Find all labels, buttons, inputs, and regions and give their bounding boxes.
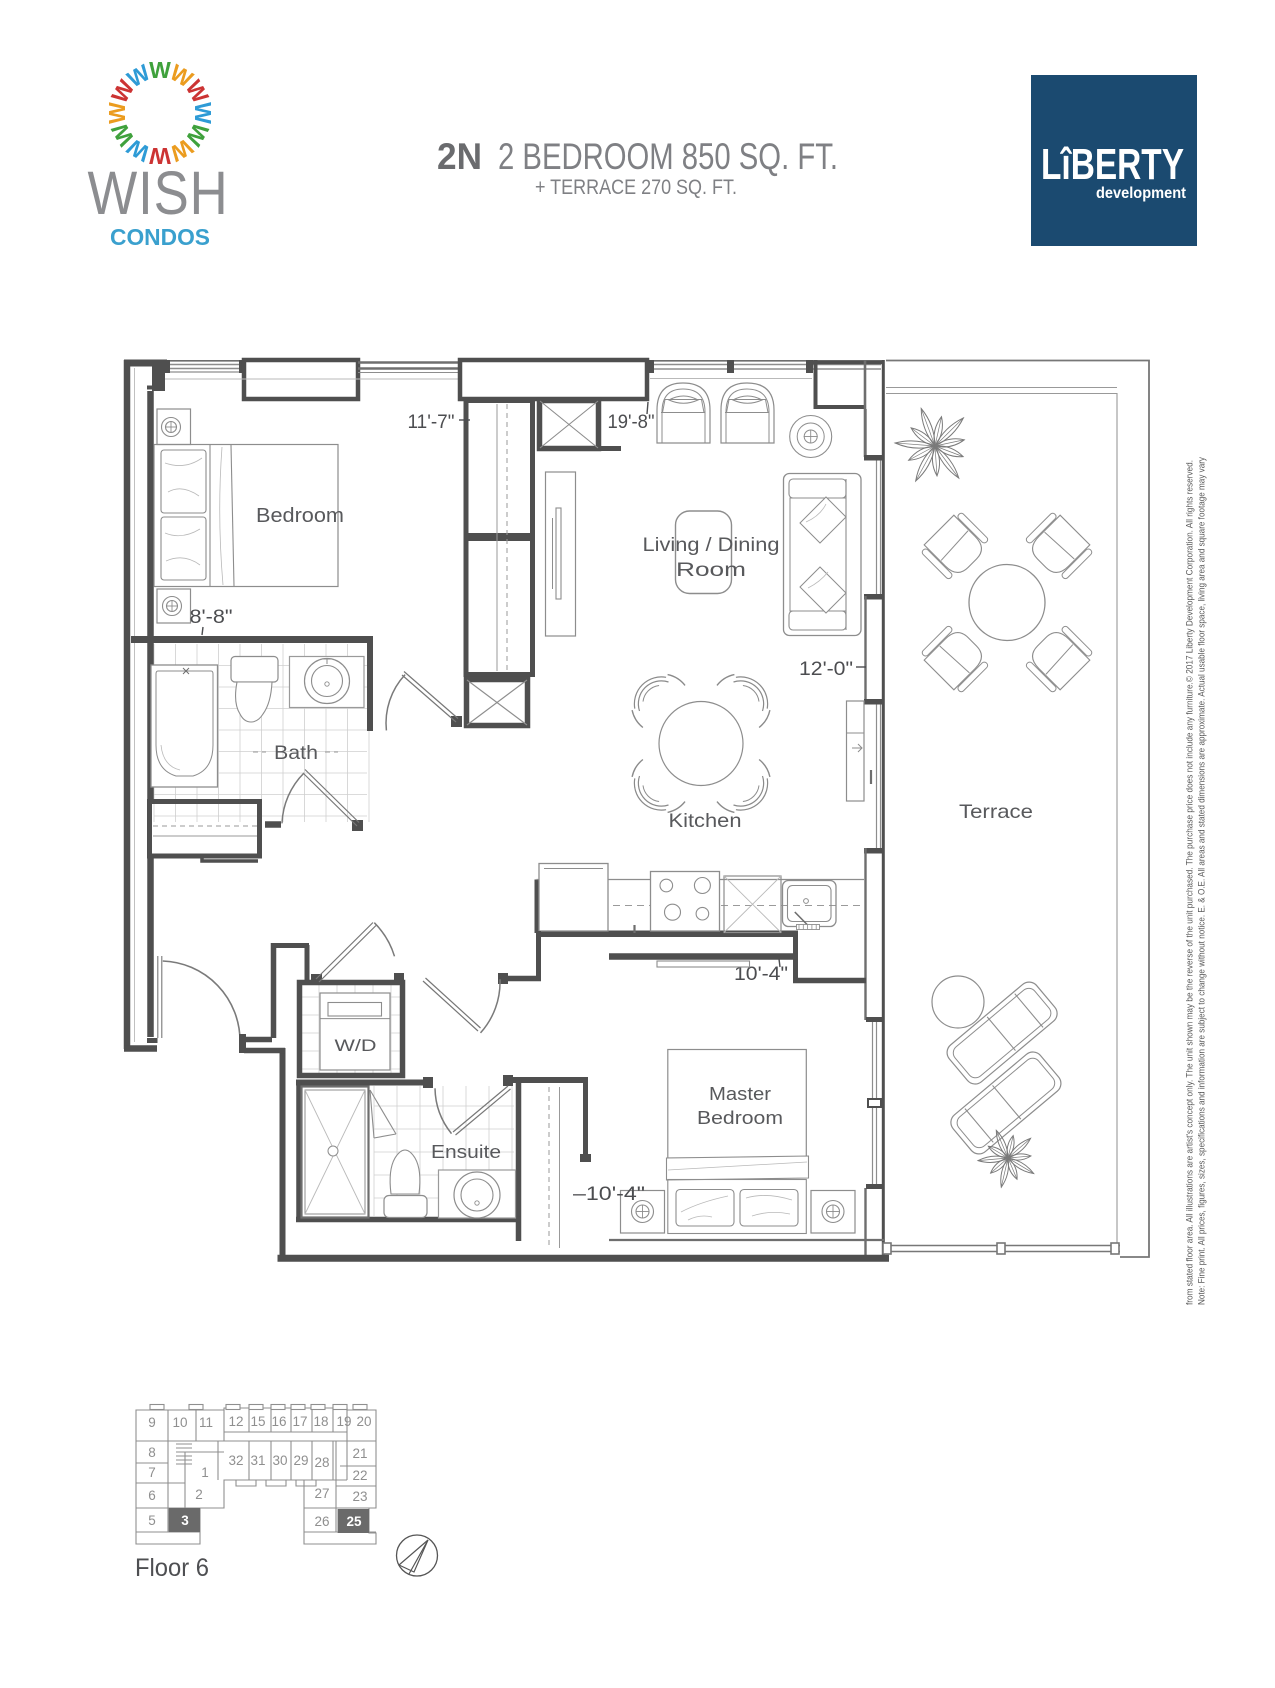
svg-text:26: 26: [314, 1514, 329, 1529]
svg-text:23: 23: [352, 1489, 367, 1504]
svg-text:11'-7": 11'-7": [408, 412, 455, 433]
svg-text:8'-8": 8'-8": [190, 607, 233, 628]
svg-text:28: 28: [314, 1455, 329, 1470]
svg-text:Master: Master: [709, 1083, 771, 1104]
svg-text:Ensuite: Ensuite: [431, 1142, 501, 1162]
svg-text:WISH: WISH: [88, 159, 229, 227]
svg-text:Note: Fine print. All prices,: Note: Fine print. All prices, figures, s…: [1197, 457, 1208, 1305]
svg-text:22: 22: [352, 1468, 367, 1483]
svg-text:15: 15: [250, 1414, 265, 1429]
svg-text:+ TERRACE 270 SQ. FT.: + TERRACE 270 SQ. FT.: [535, 176, 737, 199]
svg-text:Living / Dining: Living / Dining: [643, 534, 780, 556]
svg-text:from stated floor area. All il: from stated floor area. All illustration…: [1185, 460, 1196, 1305]
svg-text:8: 8: [148, 1445, 156, 1460]
svg-text:30: 30: [272, 1453, 287, 1468]
svg-text:3: 3: [181, 1513, 189, 1528]
svg-text:Bath: Bath: [274, 743, 318, 764]
svg-text:11: 11: [199, 1415, 213, 1430]
svg-text:5: 5: [148, 1513, 156, 1528]
svg-text:27: 27: [314, 1486, 329, 1501]
svg-text:LîBERTY: LîBERTY: [1041, 140, 1184, 189]
svg-text:2 BEDROOM 850 SQ. FT.: 2 BEDROOM 850 SQ. FT.: [498, 136, 838, 177]
svg-text:19: 19: [336, 1414, 351, 1429]
svg-text:W/D: W/D: [335, 1036, 377, 1055]
svg-text:2: 2: [195, 1487, 203, 1502]
svg-text:25: 25: [346, 1514, 362, 1529]
svg-text:18: 18: [313, 1414, 328, 1429]
svg-text:16: 16: [271, 1414, 286, 1429]
svg-text:20: 20: [356, 1414, 371, 1429]
svg-text:31: 31: [250, 1453, 265, 1468]
svg-text:Floor 6: Floor 6: [135, 1554, 209, 1582]
svg-text:6: 6: [148, 1488, 156, 1503]
svg-text:Bedroom: Bedroom: [697, 1107, 783, 1128]
svg-text:–10'-4": –10'-4": [573, 1184, 645, 1205]
svg-text:29: 29: [293, 1453, 308, 1468]
svg-text:2N: 2N: [437, 136, 482, 177]
svg-text:Room: Room: [676, 559, 746, 581]
svg-text:development: development: [1096, 185, 1187, 202]
svg-text:17: 17: [292, 1414, 307, 1429]
svg-text:21: 21: [352, 1446, 367, 1461]
svg-text:12: 12: [228, 1414, 243, 1429]
svg-text:32: 32: [228, 1453, 243, 1468]
svg-text:19'-8": 19'-8": [608, 412, 655, 433]
svg-text:12'-0": 12'-0": [799, 659, 853, 680]
svg-text:CONDOS: CONDOS: [110, 224, 210, 250]
svg-text:10: 10: [172, 1415, 187, 1430]
svg-text:Terrace: Terrace: [959, 801, 1033, 823]
svg-text:1: 1: [201, 1465, 209, 1480]
svg-text:9: 9: [148, 1415, 156, 1430]
svg-text:Kitchen: Kitchen: [669, 810, 742, 832]
svg-text:7: 7: [148, 1465, 156, 1480]
svg-text:Bedroom: Bedroom: [256, 505, 344, 527]
